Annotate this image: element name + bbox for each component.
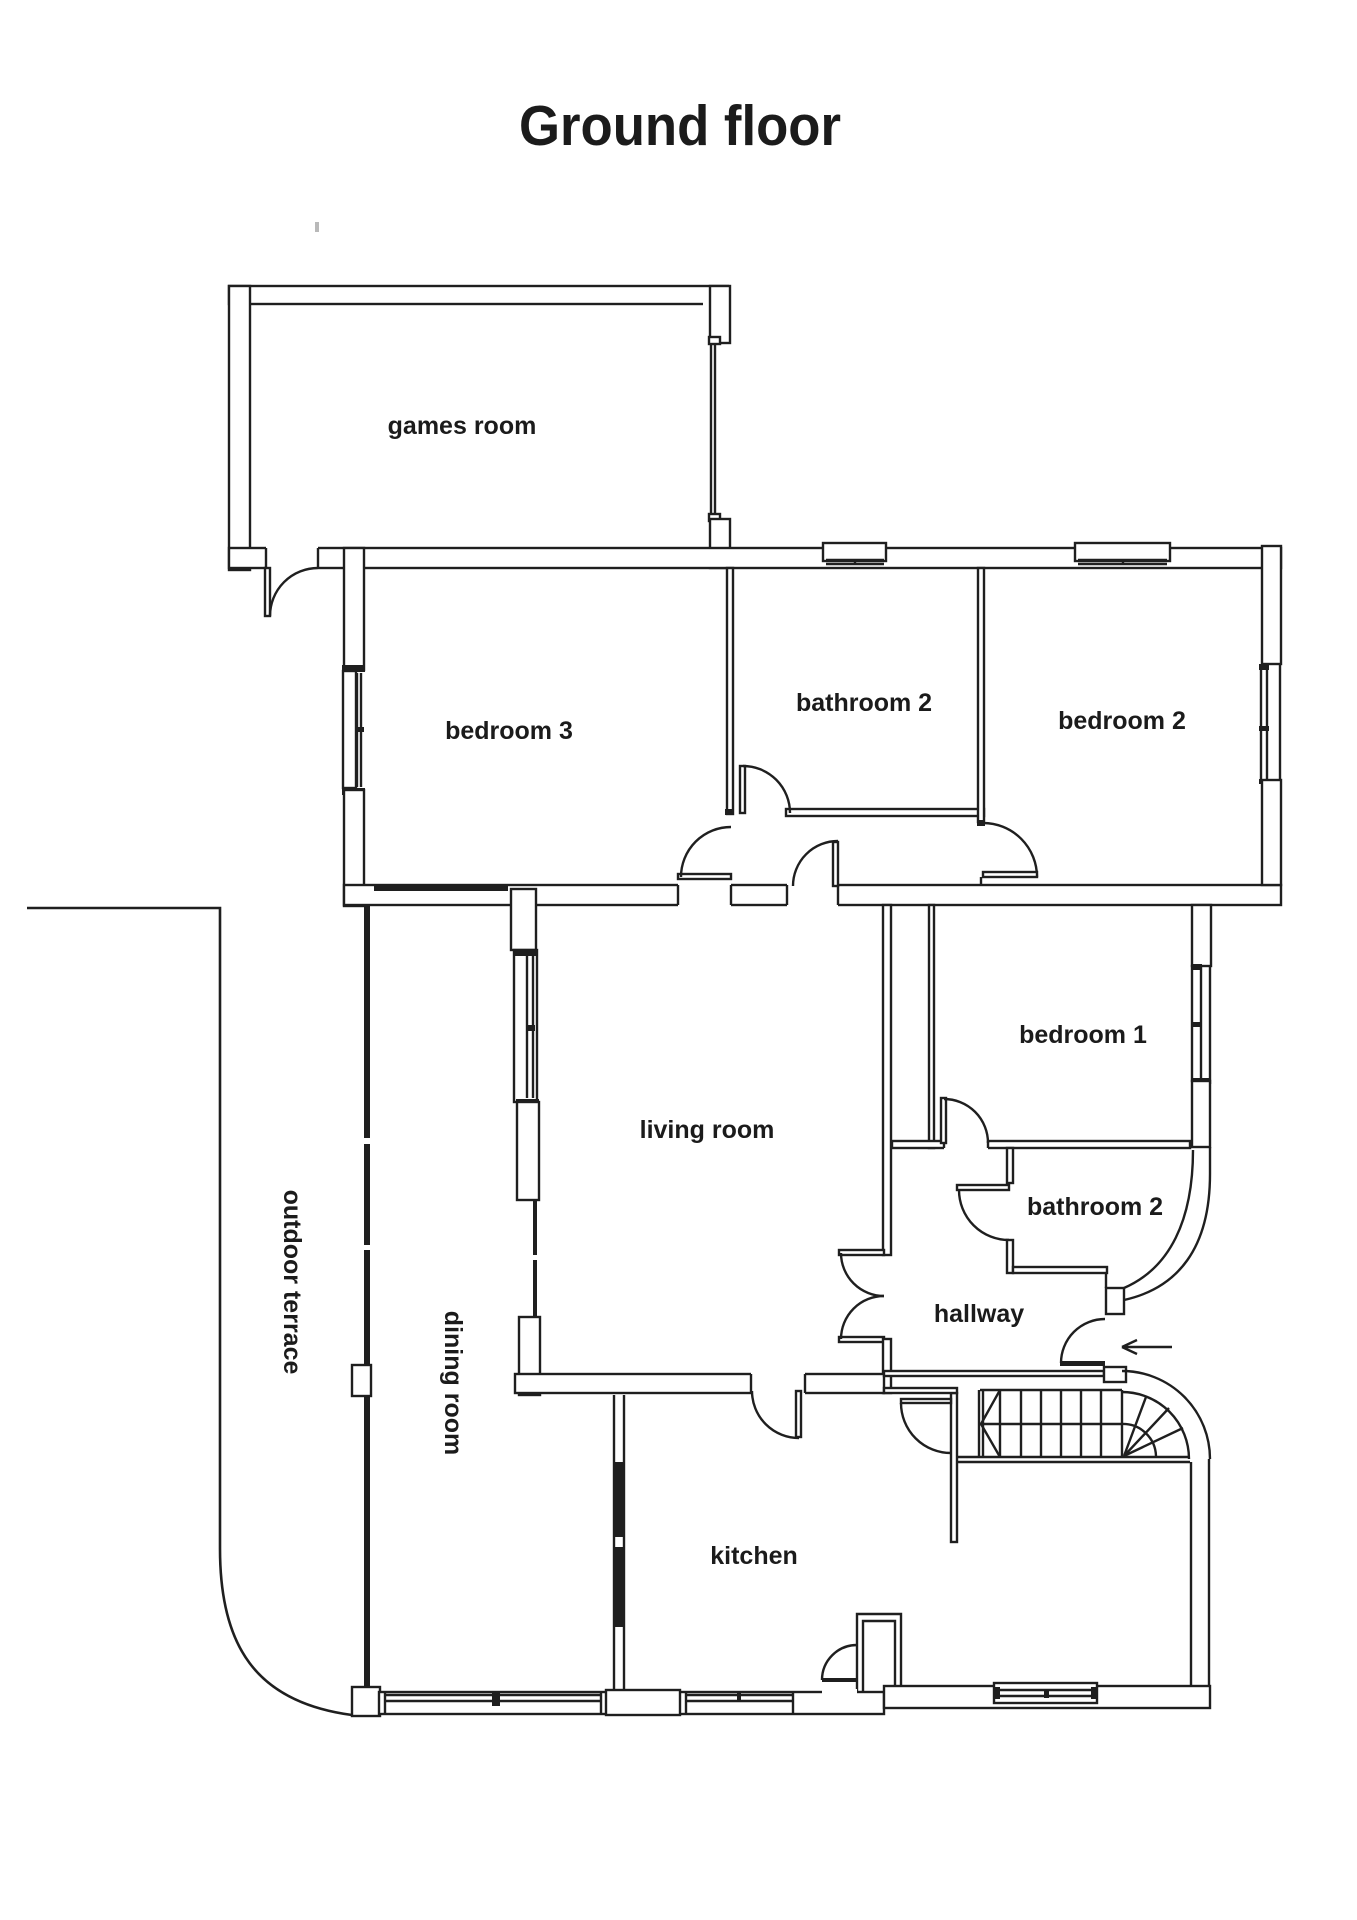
svg-text:kitchen: kitchen: [710, 1542, 798, 1570]
svg-text:living room: living room: [640, 1116, 775, 1144]
svg-text:games room: games room: [388, 412, 537, 440]
svg-text:bathroom 2: bathroom 2: [1027, 1193, 1163, 1221]
svg-text:hallway: hallway: [934, 1300, 1024, 1328]
svg-text:outdoor terrace: outdoor terrace: [278, 1190, 306, 1375]
svg-text:bedroom 3: bedroom 3: [445, 717, 573, 745]
svg-text:dining room: dining room: [439, 1311, 467, 1455]
svg-text:bathroom 2: bathroom 2: [796, 689, 932, 717]
svg-text:bedroom 1: bedroom 1: [1019, 1021, 1147, 1049]
svg-text:bedroom 2: bedroom 2: [1058, 707, 1186, 735]
svg-text:Ground floor: Ground floor: [519, 94, 841, 158]
